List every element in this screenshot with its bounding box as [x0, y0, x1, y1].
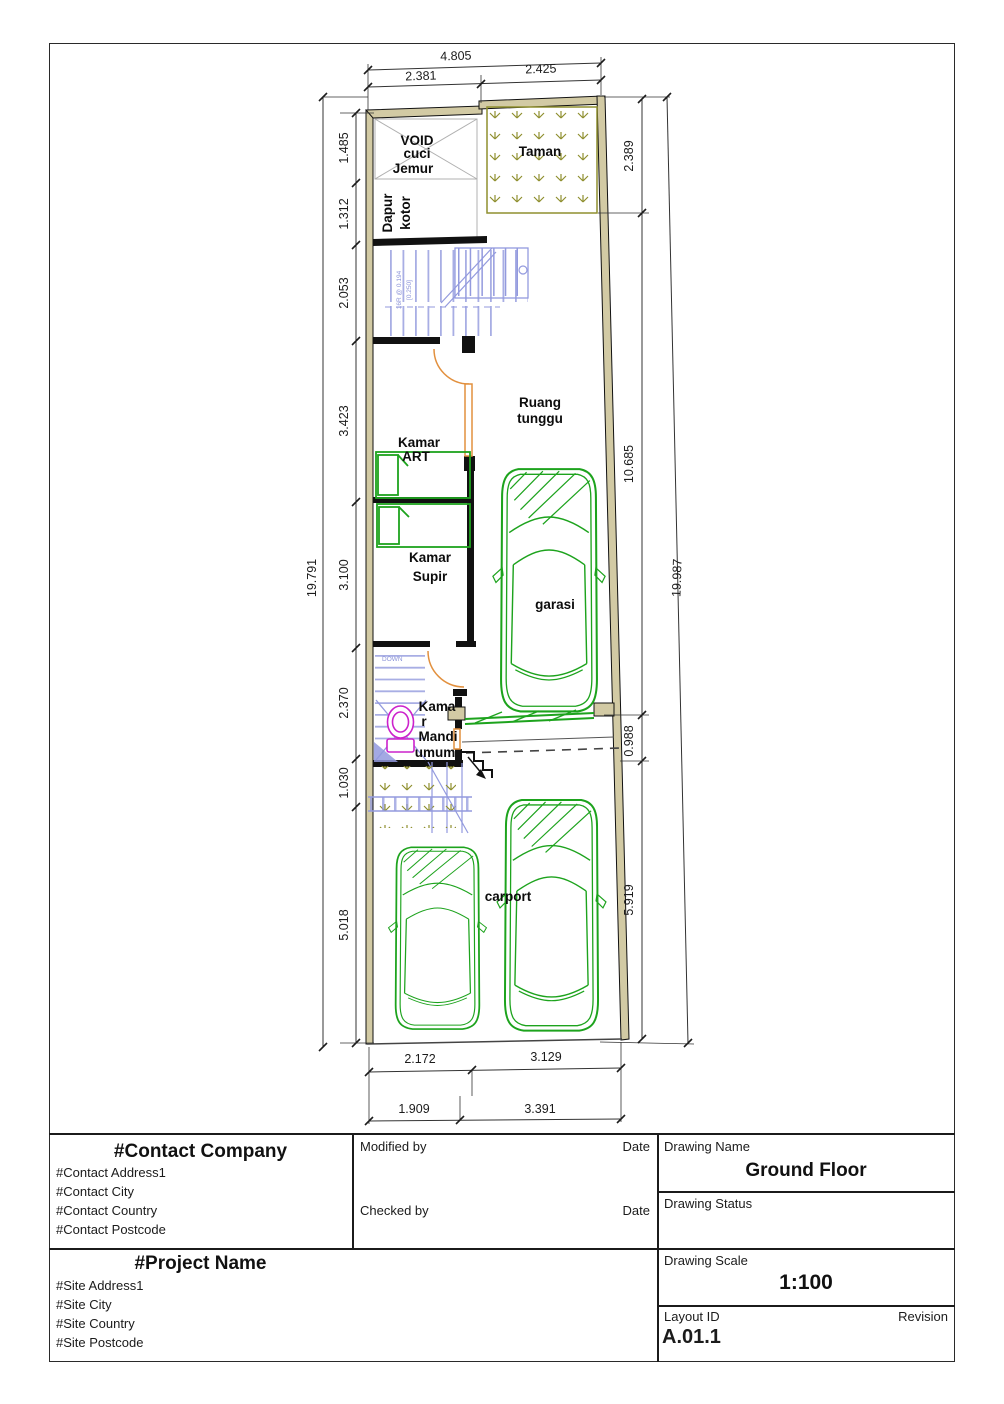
- room-label-kamar-supir: Supir: [413, 569, 448, 584]
- layout-id-value: A.01.1: [662, 1326, 721, 1349]
- room-label-taman: Taman: [519, 144, 562, 159]
- dim-right-seg: 10.685: [622, 445, 636, 483]
- entry-steps: [462, 752, 492, 779]
- drawing-name-label: Drawing Name: [664, 1139, 750, 1154]
- dim-right-seg: 0.988: [622, 725, 636, 756]
- checked-date-label: Date: [560, 1203, 650, 1218]
- room-label-dapur: Dapur: [380, 193, 395, 233]
- room-label-kamar-supir: Kamar: [409, 550, 452, 565]
- drawing-name-value: Ground Floor: [657, 1160, 955, 1182]
- room-label-void: cuci: [403, 146, 430, 161]
- stair-note: [0.250]: [406, 280, 413, 300]
- dim-left-seg: 3.100: [337, 559, 351, 590]
- checked-by-label: Checked by: [360, 1203, 429, 1218]
- door-arc-kamar-mandi: [428, 651, 464, 687]
- room-label-carport: carport: [485, 889, 532, 904]
- site-address1: #Site Address1: [56, 1278, 143, 1293]
- contact-country: #Contact Country: [56, 1203, 157, 1218]
- dim-left-seg: 2.370: [337, 687, 351, 718]
- dim-bottom-seg: 1.909: [398, 1102, 429, 1116]
- dim-top-seg: 2.425: [525, 61, 557, 76]
- room-label-ruang-tunggu: tunggu: [517, 411, 563, 426]
- contact-city: #Contact City: [56, 1184, 134, 1199]
- revision-label: Revision: [848, 1309, 948, 1324]
- dim-top-total: 4.805: [440, 48, 472, 63]
- dim-left-seg: 1.030: [337, 767, 351, 798]
- room-label-void: Jemur: [393, 161, 434, 176]
- bed-kamar-supir: [377, 504, 470, 547]
- modified-by-label: Modified by: [360, 1139, 426, 1154]
- room-label-dapur: kotor: [398, 195, 413, 229]
- dim-left-seg: 1.485: [337, 132, 351, 163]
- toilet: [387, 706, 414, 752]
- dim-left-seg: 3.423: [337, 405, 351, 436]
- site-postcode: #Site Postcode: [56, 1335, 143, 1350]
- dim-right-seg: 5.919: [622, 884, 636, 915]
- project-name: #Project Name: [49, 1253, 352, 1275]
- entry-garden: [368, 766, 472, 828]
- dim-left-total: 19.791: [305, 559, 319, 597]
- tb-border-mid: [49, 1248, 955, 1250]
- down-label: DOWN: [382, 656, 403, 663]
- room-label-ruang-tunggu: Ruang: [519, 395, 561, 410]
- tb-divider-name-status: [657, 1191, 955, 1193]
- carport-slab-edge: [367, 1039, 622, 1044]
- dim-bottom-seg: 3.391: [524, 1102, 555, 1116]
- car-carport-left: [389, 847, 487, 1029]
- room-label-garasi: garasi: [535, 597, 575, 612]
- dim-bottom-seg: 3.129: [530, 1050, 561, 1064]
- staircase-up: 16R @ 0.194 [0.250]: [385, 248, 528, 321]
- dim-left-seg: 1.312: [337, 198, 351, 229]
- tb-divider-v1: [352, 1133, 354, 1248]
- floor-plan-drawing: 16R @ 0.194 [0.250] DOWN: [0, 0, 1004, 1133]
- tb-border-top: [49, 1133, 955, 1135]
- room-label-kamar-art: Kamar: [398, 435, 441, 450]
- car-garasi: [493, 469, 605, 711]
- car-carport-right: [497, 800, 606, 1031]
- stair-note: 16R @ 0.194: [396, 270, 403, 309]
- dim-left-seg: 2.053: [337, 277, 351, 308]
- room-label-kamar-mandi: r: [421, 714, 427, 729]
- room-label-kamar-mandi: umum: [415, 745, 456, 760]
- site-city: #Site City: [56, 1297, 112, 1312]
- room-label-kamar-mandi: Mandi: [419, 729, 458, 744]
- room-label-kamar-art: ART: [402, 449, 430, 464]
- taman-garden: [487, 107, 597, 213]
- site-country: #Site Country: [56, 1316, 135, 1331]
- tb-divider-scale-layout: [657, 1305, 955, 1307]
- dim-right-total: 19.987: [669, 558, 684, 597]
- dim-bottom-seg: 2.172: [404, 1052, 435, 1066]
- contact-company: #Contact Company: [49, 1141, 352, 1163]
- door-leaf: [465, 384, 472, 456]
- door-arc-ruang-tunggu: [434, 349, 469, 384]
- drawing-scale-value: 1:100: [657, 1271, 955, 1295]
- dim-top-seg: 2.381: [405, 68, 437, 83]
- contact-address1: #Contact Address1: [56, 1165, 166, 1180]
- layout-id-label: Layout ID: [664, 1309, 720, 1324]
- dim-left-seg: 5.018: [337, 909, 351, 940]
- drawing-status-label: Drawing Status: [664, 1196, 752, 1211]
- room-label-kamar-mandi: Kama: [419, 699, 456, 714]
- canopy-dashed-line: [466, 748, 621, 753]
- dim-right-seg: 2.389: [622, 140, 636, 171]
- drawing-scale-label: Drawing Scale: [664, 1253, 748, 1268]
- contact-postcode: #Contact Postcode: [56, 1222, 166, 1237]
- modified-date-label: Date: [560, 1139, 650, 1154]
